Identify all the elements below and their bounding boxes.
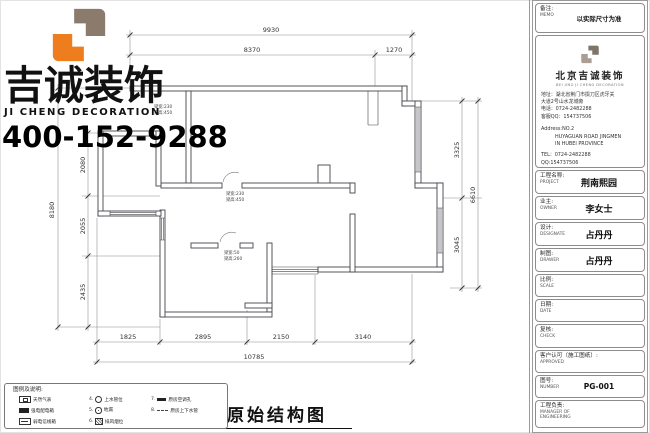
legend-num: 5. [89, 408, 93, 413]
legend-label: 地漏 [104, 407, 113, 413]
wall [318, 267, 443, 272]
legend-item: 6. 排风烟位 [89, 418, 151, 426]
company-qq-en: QQ:154737506 [541, 160, 639, 167]
door-swing-icon [223, 172, 239, 182]
owner-label: 业主: OWNER [540, 199, 557, 211]
scale-label: 比例: SCALE [540, 277, 554, 289]
legend-label: 排风烟位 [105, 419, 123, 425]
manager-label-cn: 工程负责: [540, 403, 571, 410]
memo-label-en: MEMO [540, 13, 554, 18]
dim-top-overall: 9930 [263, 26, 280, 34]
titleblock-row-manager: 工程负责: MANAGER OF ENGINEERING [535, 400, 645, 428]
project-label: 工程名称: PROJECT [540, 173, 564, 185]
titleblock-row-number: 图号: NUMBER PG-001 [535, 375, 645, 398]
dim-left-a: 2080 [79, 157, 87, 174]
ac-hole-icon [157, 398, 166, 401]
legend-item: 8. 原房上下水管 [151, 408, 223, 414]
dim-bottom-a: 1825 [120, 333, 137, 341]
project-label-en: PROJECT [540, 180, 564, 185]
dim-right-b: 3045 [453, 237, 461, 254]
water-line-icon [157, 410, 168, 411]
company-name-cn: 北京吉诚装饰 [555, 68, 624, 82]
titleblock-row-company: 北京吉诚装饰 BEI JING JI CHENG DECORATION 地址：湖… [535, 35, 645, 168]
scale-label-en: SCALE [540, 284, 554, 289]
dim-right-overall: 6610 [469, 187, 477, 204]
company-qq: 客服QQ：154737506 [541, 114, 639, 121]
date-label-cn: 日期: [540, 302, 553, 309]
window [272, 267, 318, 274]
dim-bottom-c: 2150 [273, 333, 290, 341]
company-addr-en1: Address:NO.2 [541, 126, 639, 133]
wall [160, 210, 165, 317]
drawer-label: 制图: DRAWER [540, 251, 559, 263]
wall [415, 101, 421, 188]
legend-row: 强电配电箱 5. 地漏 8. 原房上下水管 [13, 405, 227, 416]
beam-note-a2-h: 梁高:450 [226, 196, 245, 203]
legend-num: 6. [89, 419, 93, 424]
company-tel: 电话：0724-2482288 [541, 106, 639, 113]
brand-name-en: JI CHENG DECORATION [4, 107, 198, 118]
company-address: 地址：湖北省荆门市掇刀区虎牙关 大道2号山水龙城旁 电话：0724-248228… [536, 92, 644, 167]
dim-left-b: 2055 [79, 218, 87, 235]
company-addr-en2: HUYAGUAN ROAD JINGMEN [541, 134, 639, 141]
titleblock-separator [529, 0, 530, 433]
wall [242, 183, 352, 188]
jicheng-logo-small-icon [575, 44, 605, 65]
titleblock: 备注: MEMO 以实际尺寸为准 北京吉诚装饰 BEI JING JI CHEN… [532, 0, 648, 433]
brand-phone: 400-152-9288 [2, 120, 198, 154]
titleblock-row-date: 日期: DATE [535, 299, 645, 322]
floor-drain-icon [95, 407, 101, 413]
beam-note-a3-h: 梁高:260 [224, 255, 243, 262]
gas-meter-icon [19, 396, 31, 403]
company-addr-en3: IN HUBEI PROVINCE [541, 141, 639, 148]
titleblock-row-scale: 比例: SCALE [535, 274, 645, 297]
titleblock-row-approved: 客户认可（施工图纸）: APPROVED [535, 350, 645, 373]
legend-item: 5. 地漏 [89, 407, 151, 413]
legend-label: 原房空调孔 [168, 397, 191, 403]
company-name-en: BEI JING JI CHENG DECORATION [556, 83, 624, 87]
wall [161, 183, 222, 188]
drawer-label-cn: 制图: [540, 251, 559, 258]
approved-label: 客户认可（施工图纸）: APPROVED [540, 353, 598, 365]
check-label-cn: 复核: [540, 327, 555, 334]
dim-bottom-b: 2895 [195, 333, 212, 341]
wall [267, 243, 272, 312]
memo-label-cn: 备注: [540, 6, 554, 13]
dim-right-a: 3325 [453, 142, 461, 159]
dim-left-c: 2435 [79, 284, 87, 301]
check-label-en: CHECK [540, 334, 555, 339]
drawer-label-en: DRAWER [540, 258, 559, 263]
legend-item: 弱电信线箱 [13, 418, 89, 425]
dim-left-overall: 8180 [48, 202, 56, 219]
legend-item: 7. 原房空调孔 [151, 397, 223, 403]
legend-row: 天然气表 4. 上水管位 7. 原房空调孔 [13, 394, 227, 405]
approved-label-en: APPROVED [540, 360, 598, 365]
legend-label: 上水管位 [104, 397, 122, 403]
date-label-en: DATE [540, 309, 553, 314]
design-label-cn: 设计: [540, 225, 565, 232]
approved-label-cn: 客户认可（施工图纸）: [540, 353, 598, 360]
door-swings [220, 172, 239, 242]
company-tel-en: TEL：0724-2482288 [541, 152, 639, 159]
wall [350, 214, 355, 272]
legend-box: 图例及说明: 天然气表 4. 上水管位 7. 原房空调孔 强电配电箱 5. 地漏… [4, 383, 228, 429]
power-box-icon [19, 408, 29, 413]
legend-label: 强电配电箱 [31, 408, 54, 414]
legend-item: 天然气表 [13, 396, 89, 403]
water-pipe-icon [95, 396, 102, 403]
memo-label: 备注: MEMO [540, 6, 554, 18]
dim-top-a: 8370 [244, 46, 261, 54]
design-label: 设计: DESIGNATE [540, 225, 565, 237]
wall [191, 243, 218, 248]
door-swing-icon [220, 232, 236, 242]
titleblock-row-project: 工程名称: PROJECT 荆南熙园 [535, 170, 645, 194]
titleblock-row-design: 设计: DESIGNATE 占丹丹 [535, 222, 645, 246]
titleblock-row-memo: 备注: MEMO 以实际尺寸为准 [535, 3, 645, 33]
number-label-cn: 图号: [540, 378, 559, 385]
legend-header: 图例及说明: [13, 385, 227, 393]
flue [368, 91, 378, 125]
manager-label-en: MANAGER OF ENGINEERING [540, 410, 571, 421]
legend-num: 4. [89, 397, 93, 402]
number-label-en: NUMBER [540, 385, 559, 390]
wall [160, 312, 272, 317]
brand-block: 吉诚装饰 JI CHENG DECORATION 400-152-9288 [2, 4, 198, 154]
legend-label: 原房上下水管 [170, 408, 198, 414]
legend-label: 弱电信线箱 [33, 419, 56, 425]
wall [240, 243, 253, 248]
titleblock-row-drawer: 制图: DRAWER 占丹丹 [535, 248, 645, 272]
legend-label: 天然气表 [33, 397, 51, 403]
beam-note-a2-w: 梁宽:230 [226, 190, 245, 197]
legend-row: 弱电信线箱 6. 排风烟位 [13, 416, 227, 427]
brand-name-cn: 吉诚装饰 [4, 66, 198, 106]
legend-item: 4. 上水管位 [89, 396, 151, 403]
exhaust-vent-icon [95, 418, 103, 426]
legend-item: 强电配电箱 [13, 408, 89, 414]
design-label-en: DESIGNATE [540, 232, 565, 237]
owner-label-en: OWNER [540, 206, 557, 211]
dim-bottom-d: 3140 [355, 333, 372, 341]
wall [350, 183, 355, 193]
project-label-cn: 工程名称: [540, 173, 564, 180]
scale-label-cn: 比例: [540, 277, 554, 284]
wall [98, 211, 161, 216]
wall [245, 303, 272, 308]
weak-current-box-icon [19, 418, 31, 425]
beam-note-a3-w: 梁宽:50 [224, 249, 240, 256]
number-label: 图号: NUMBER [540, 378, 559, 390]
owner-label-cn: 业主: [540, 199, 557, 206]
dim-top-b: 1270 [386, 46, 403, 54]
check-label: 复核: CHECK [540, 327, 555, 339]
jicheng-logo-icon [48, 4, 110, 66]
manager-label: 工程负责: MANAGER OF ENGINEERING [540, 403, 571, 420]
date-label: 日期: DATE [540, 302, 553, 314]
legend-num: 8. [151, 408, 155, 413]
legend-num: 7. [151, 397, 155, 402]
titleblock-row-owner: 业主: OWNER 李女士 [535, 196, 645, 220]
dim-bottom-overall: 10785 [244, 353, 265, 361]
titleblock-row-check: 复核: CHECK [535, 324, 645, 348]
wall [437, 183, 443, 272]
